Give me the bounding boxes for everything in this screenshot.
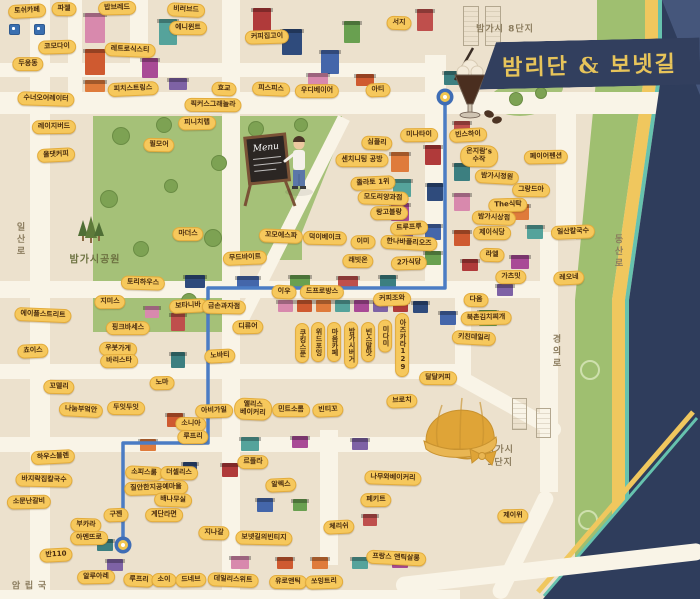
shop-label: 민트소롬 — [272, 403, 310, 417]
shop-label: 빈스하이 — [449, 127, 487, 143]
shop-label: 소이 — [151, 573, 176, 587]
shop-label: 파젤 — [51, 2, 76, 16]
road-name: 동산로 — [612, 234, 625, 270]
shop-label: 유로앤틱 — [269, 575, 307, 589]
shop-label: 일산칼국수 — [551, 224, 596, 240]
shop-label: 서지 — [386, 16, 411, 31]
road-name: 일산로 — [14, 222, 27, 258]
shop-label: 하우스블렌 — [31, 449, 76, 465]
shop-label: 지나갈 — [198, 526, 230, 540]
shop-label: 필모어 — [143, 138, 175, 152]
shop-label: 레트로식스티 — [104, 42, 155, 58]
shop-label: 쏘잉트리 — [305, 574, 343, 589]
shop-label: 모도리양과점 — [357, 190, 408, 205]
shop-label: 루프리 — [177, 430, 208, 444]
shop-label: 졸라토 1위 — [350, 175, 396, 191]
shop-label: 페키트 — [360, 493, 391, 507]
shop-label: 토쉬카페 — [8, 3, 46, 19]
shop-label: 올댓커피 — [37, 147, 75, 163]
shop-label: 빈스말맛 — [361, 322, 375, 362]
shop-label: 키친데일리 — [452, 330, 497, 346]
area-name: 밤가시공원 — [70, 251, 121, 266]
shop-label: 배나무실 — [154, 492, 192, 507]
shop-label: 계단라면 — [145, 508, 183, 522]
shop-label: 두잇두잇 — [107, 401, 145, 415]
shop-label: 바리스타 — [100, 354, 138, 368]
shop-label: 아티 — [365, 83, 390, 98]
shop-label: 소피스룸 — [125, 465, 163, 481]
shop-label: 센치니팅 공방 — [335, 153, 388, 167]
shop-label: 피스피스 — [252, 81, 290, 96]
shop-label: 커피조와 — [373, 291, 411, 306]
shop-label: 알렉스 — [265, 477, 297, 492]
shop-label: 바지락집칼국수 — [15, 472, 72, 487]
shop-label: 꼬모에스파 — [259, 228, 304, 244]
shop-label: 제이위 — [497, 509, 529, 523]
labels-layer: 토쉬카페파젤밥브레드비러브드에니윈트코모다이레트로식스티두옹동피치스트링스수너오… — [0, 0, 700, 599]
shop-label: 피치스트링스 — [107, 81, 158, 97]
shop-label: 한나바플리오즈 — [380, 235, 438, 252]
shop-label: 나무와베이커리 — [364, 470, 421, 486]
shop-label: 쵸이스 — [17, 343, 49, 358]
shop-label: 트루프루 — [390, 220, 428, 236]
shop-label: 나눔부엌안 — [59, 402, 104, 418]
shop-label: 우디베이어 — [295, 84, 339, 98]
shop-label: 밥브레드 — [98, 1, 136, 16]
shop-label: 피니치랩 — [178, 116, 216, 131]
shop-label: 알루아레 — [77, 570, 115, 585]
shop-label: 디류어 — [232, 320, 264, 334]
shop-label: 토리하우스 — [121, 275, 166, 290]
shop-label: 노마 — [149, 376, 174, 390]
shop-label: 밤가시상점 — [472, 210, 517, 226]
shop-label: 마더스 — [172, 227, 203, 241]
shop-label: 밤가시정원 — [475, 169, 520, 185]
shop-label: 수너오어레이터 — [17, 91, 74, 107]
shop-label: 미나타이 — [400, 128, 438, 142]
shop-label: 랑고블랑 — [370, 206, 408, 220]
shop-label: 커피집고이 — [245, 29, 290, 44]
shop-label: 2가식당 — [391, 256, 428, 271]
shop-label: 드프로방스 — [300, 285, 344, 299]
shop-label: 드네브 — [175, 573, 207, 588]
shop-label: 밤가시버거 — [344, 322, 358, 369]
shop-label: 온지람's 수작 — [460, 145, 498, 167]
shop-label: 그랑드아 — [512, 183, 550, 197]
road-name: 국립암 — [9, 580, 48, 593]
road-name: 경의로 — [550, 334, 563, 370]
shop-label: 반110 — [39, 547, 73, 563]
shop-label: 라엘 — [479, 248, 504, 263]
shop-label: 효교 — [211, 81, 237, 96]
shop-label: 아비가일 — [195, 403, 233, 418]
shop-label: 위드포잉 — [311, 322, 325, 362]
shop-label: 지미스 — [94, 295, 125, 309]
shop-label: 심플리 — [361, 135, 393, 150]
shop-label: 레오네 — [553, 270, 585, 285]
shop-label: 제이식당 — [473, 226, 511, 240]
shop-label: 프랑스 앤틱살롱 — [366, 550, 426, 567]
shop-label: 앨리스 베이커리 — [234, 397, 273, 420]
shop-label: 다옴 — [463, 293, 488, 307]
shop-label: 꼬델리 — [43, 380, 75, 394]
shop-label: 에니윈트 — [169, 21, 207, 35]
shop-label: 비러브드 — [167, 2, 205, 18]
shop-label: 브로치 — [386, 394, 418, 409]
golden-bonnet-icon — [418, 383, 503, 475]
shop-label: 마음카페 — [327, 322, 341, 362]
shop-label: 르플라 — [237, 455, 268, 469]
shop-label: 노바티 — [204, 348, 236, 363]
shop-label: 이우 — [271, 284, 297, 299]
shop-label: 루프리 — [123, 572, 155, 587]
map-title: 밤리단 & 보넷길 — [502, 46, 677, 82]
shop-label: 픽커스그래놀라 — [184, 98, 241, 112]
shop-label: 두옹동 — [12, 57, 43, 71]
shop-label: 가츠밋 — [495, 270, 526, 284]
shop-label: 소문난갈비 — [7, 495, 51, 510]
shop-label: 레이지버드 — [32, 120, 76, 134]
shop-label: 코모다이 — [38, 39, 76, 54]
menu-chalkboard-person-icon: Menu — [243, 128, 318, 213]
shop-label: 래빗온 — [342, 254, 373, 268]
shop-label: 이미 — [350, 235, 375, 249]
shop-label: 무드바이트 — [223, 250, 268, 266]
shop-label: 에이플스트리트 — [14, 307, 72, 323]
illustrated-neighborhood-map: 밤리단 & 보넷길 Menu — [0, 0, 700, 599]
shop-label: 보넷길의빈티지 — [235, 530, 292, 545]
shop-label: 쿠킹스푼 — [295, 323, 309, 363]
shop-label: 체리쉬 — [323, 519, 355, 534]
shop-label: 아멘뜨로 — [70, 531, 108, 545]
shop-label: 구젠 — [103, 508, 128, 523]
area-name: 밤가시 8단지 — [476, 22, 534, 35]
shop-label: 빈티꼬 — [312, 402, 344, 417]
shop-label: 금손과자점 — [202, 300, 246, 315]
title-banner: 밤리단 & 보넷길 — [478, 37, 700, 89]
shop-label: 북촌김치찌개 — [461, 311, 512, 326]
shop-label: 더셀리스 — [160, 466, 198, 480]
shop-label: 페이어펜션 — [524, 150, 568, 165]
shop-label: 아즈카라129 — [395, 313, 409, 377]
shop-label: 데일리스위트 — [207, 572, 258, 588]
shop-label: 덕이베이크 — [303, 231, 347, 246]
shop-label: 핑크바세스 — [106, 321, 150, 335]
shop-label: 미다미 — [378, 320, 392, 353]
